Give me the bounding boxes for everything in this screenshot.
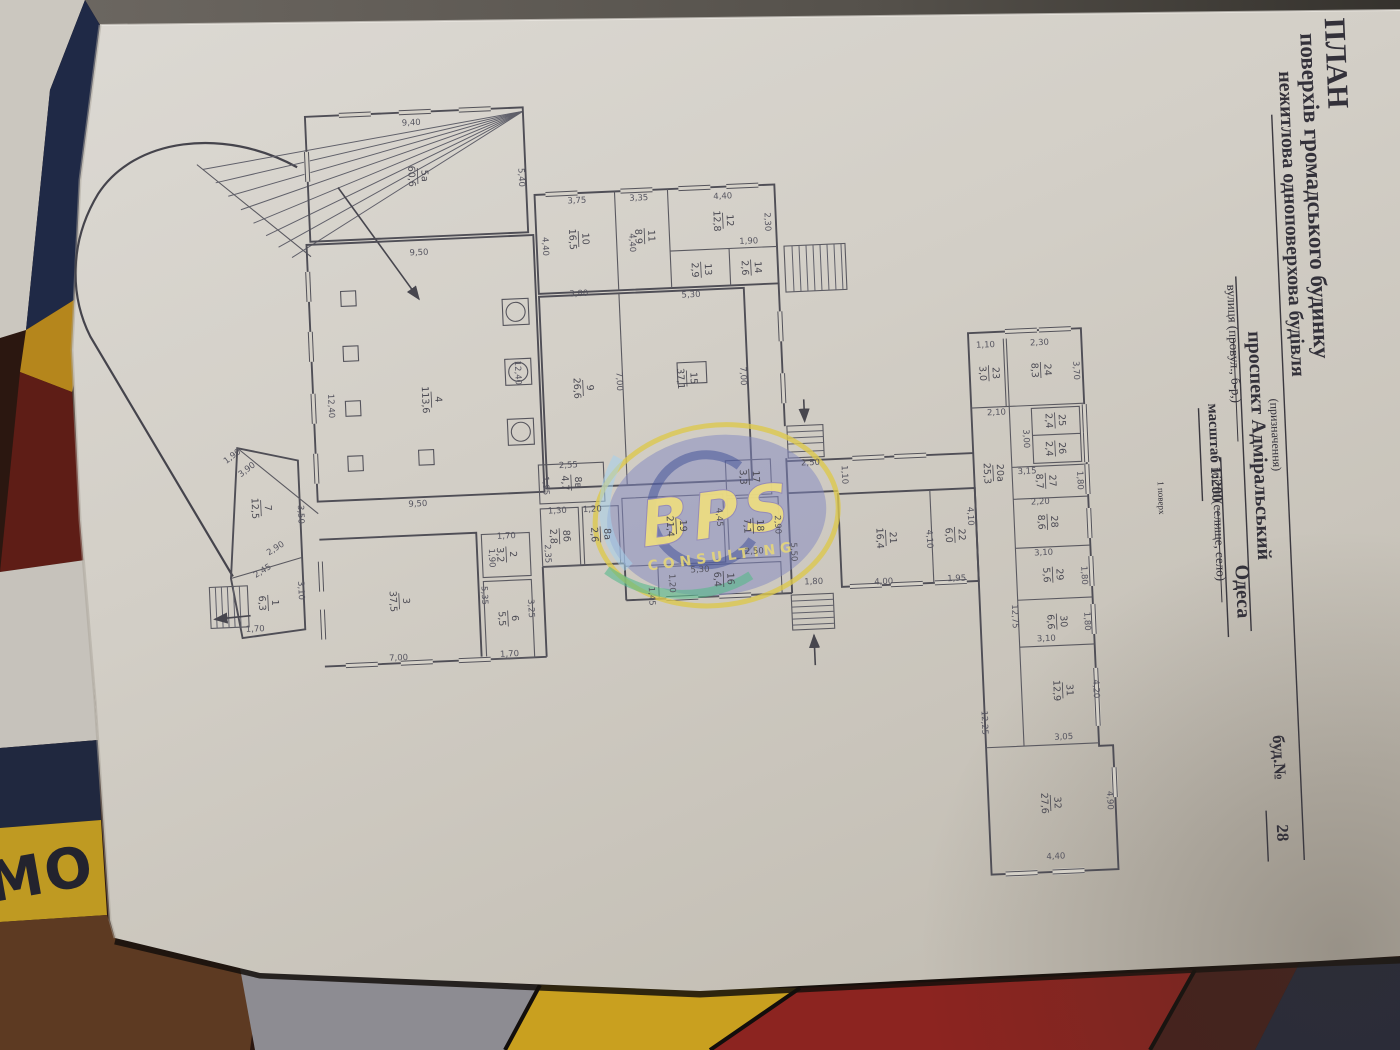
dimension-label: 3,05 [1054,732,1073,743]
room-number: 20а [994,464,1006,482]
room-number: 6 [509,615,520,622]
dimension-label: 1,70 [497,531,516,542]
dimension-label: 9,50 [409,248,428,259]
dimension-label: 4,40 [539,237,550,256]
room-area: 60,6 [405,165,417,187]
room-area: 6,6 [1044,614,1056,630]
room-area: 12,9 [1050,680,1062,702]
room-area: 37,5 [387,591,399,613]
room-area: 5,6 [1040,567,1052,583]
dimension-label: 2,90 [772,515,783,534]
dimension-label: 1,45 [646,587,657,606]
dimension-label: 3,50 [295,505,306,524]
dimension-label: 1,70 [246,624,265,635]
dimension-label: 5,35 [479,586,490,605]
room-number: 29 [1053,568,1065,581]
room-number: 32 [1051,796,1063,809]
room-number: 21 [887,531,899,544]
dimension-label: 12,75 [1009,604,1020,629]
building-no-value: 28 [1273,824,1293,842]
dimension-label: 1,80 [1081,612,1092,631]
dimension-label: 2,10 [987,408,1006,419]
room-number: 8б [560,530,572,543]
room-number: 30 [1057,615,1069,628]
room-area: 6,0 [942,527,954,543]
dimension-label: 7,00 [737,366,748,385]
dimension-label: 7,00 [389,653,408,664]
dimension-label: 3,70 [1070,361,1081,380]
room-area: 21,4 [664,516,676,538]
dimension-label: 12,25 [978,710,989,735]
room-area: 8,6 [1035,514,1047,530]
room-area: 12,8 [710,210,722,232]
room-number: 19 [677,520,689,533]
dimension-label: 3,80 [569,289,588,300]
dimension-label: 1,10 [976,340,995,351]
city-value: Одеса [1230,564,1254,619]
dimension-label: 4,10 [924,529,935,548]
room-number: 23 [989,367,1001,380]
dimension-label: 2,50 [745,546,764,557]
dimension-label: 3,10 [1037,634,1056,645]
dimension-label: 3,10 [295,581,306,600]
room-number: 18 [754,519,766,532]
room-number: 10 [579,232,591,245]
dimension-label: 9,50 [408,499,427,510]
dimension-label: 9,40 [402,118,421,129]
dimension-label: 3,10 [1034,548,1053,559]
dimension-label: 1,20 [583,504,602,515]
dimension-label: 2,50 [801,458,820,469]
dimension-label: 4,90 [1104,791,1115,810]
dimension-label: 1,20 [666,574,677,593]
room-number: 9 [584,384,595,391]
room-number: 25 [1056,414,1068,427]
dimension-label: 1,70 [500,649,519,660]
room-area: 16,4 [873,527,885,549]
room-area: 12,5 [248,498,260,520]
dimension-label: 4,20 [1090,679,1101,698]
room-number: 8в [572,476,584,489]
dimension-label: 12,40 [325,394,336,419]
dimension-label: 4,40 [713,191,732,202]
room-number: 16 [724,572,736,585]
room-number: 14 [752,261,764,274]
dimension-label: 1,80 [1074,471,1085,490]
room-area: 4,7 [559,475,571,491]
dimension-label: 7,00 [613,372,624,391]
room-number: 31 [1063,684,1075,697]
dimension-label: 5,50 [788,542,799,561]
photo-of-floor-plan-document: МО [0,0,1400,1050]
dimension-label: 2,55 [559,460,578,471]
dimension-label: 4,10 [965,507,976,526]
dimension-label: 2,30 [762,212,773,231]
room-number: 24 [1041,363,1053,376]
dimension-label: 5,30 [681,290,700,301]
dimension-label: 1,30 [548,506,567,517]
dimension-label: 2,20 [1031,497,1050,508]
dimension-label: 3,00 [1020,429,1031,448]
room-number: 2 [507,551,518,558]
room-number: 27 [1046,474,1058,487]
room-number: 11 [645,230,657,243]
room-area: 2,4 [1043,413,1055,429]
dimension-label: 3,75 [567,196,586,207]
room-number: 26 [1056,442,1068,455]
room-area: 37,1 [674,368,686,390]
dimension-label: 3,25 [525,599,536,618]
dimension-label: 4,40 [626,233,637,252]
room-number: 7 [262,505,273,512]
dimension-label: 1,90 [486,548,497,567]
navy-sliver [0,740,101,828]
dimension-label: 1,80 [804,577,823,588]
dimension-label: 2,30 [1030,338,1049,349]
room-number: 8а [601,528,613,540]
dimension-label: 1,10 [839,465,850,484]
floor-note: 1 поверх [1156,481,1167,515]
dimension-label: 2,35 [542,544,553,563]
room-number: 15 [687,372,699,385]
dimension-label: 5,40 [515,168,526,187]
room-number: 22 [956,528,968,541]
room-number: 4 [432,396,443,403]
room-area: 3,3 [737,469,749,485]
dimension-label: 3,35 [629,193,648,204]
room-area: 8,3 [1028,363,1040,379]
dimension-label: 1,90 [739,236,758,247]
room-number: 3 [400,598,411,605]
room-number: 1 [269,599,280,606]
room-area: 26,6 [571,377,583,399]
room-area: 16,5 [566,229,578,251]
room-area: 25,3 [981,463,993,485]
building-no-label: буд.№ [1269,735,1290,781]
room-area: 2,4 [1043,441,1055,457]
room-area: 113,6 [419,386,431,414]
room-area: 2,6 [739,260,751,276]
dimension-label: 4,00 [874,577,893,588]
white-sheet-under [0,560,98,748]
room-number: 12 [724,214,736,227]
room-area: 5,5 [496,611,508,627]
room-area: 2,8 [547,529,559,545]
room-area: 2,9 [689,262,701,278]
room-area: 6,3 [256,595,268,611]
room-number: 13 [702,263,714,276]
dimension-label: 1,80 [1078,566,1089,585]
room-area: 2,6 [588,527,600,543]
dimension-label: 1,95 [540,476,551,495]
dimension-label: 3,15 [1017,466,1036,477]
dimension-label: 5,30 [690,565,709,576]
room-area: 3,0 [976,366,988,382]
room-area: 7,1 [741,518,753,534]
room-number: 5а [418,170,430,182]
dimension-label: 12,40 [512,360,523,385]
room-area: 6,4 [711,572,723,588]
dimension-label: 1,95 [947,573,966,584]
room-number: 17 [750,470,762,483]
scene: МО [0,0,1400,1050]
dimension-label: 4,40 [1046,851,1065,862]
room-area: 27,6 [1038,792,1050,814]
dimension-label: 4,45 [713,508,724,527]
room-number: 28 [1048,515,1060,528]
